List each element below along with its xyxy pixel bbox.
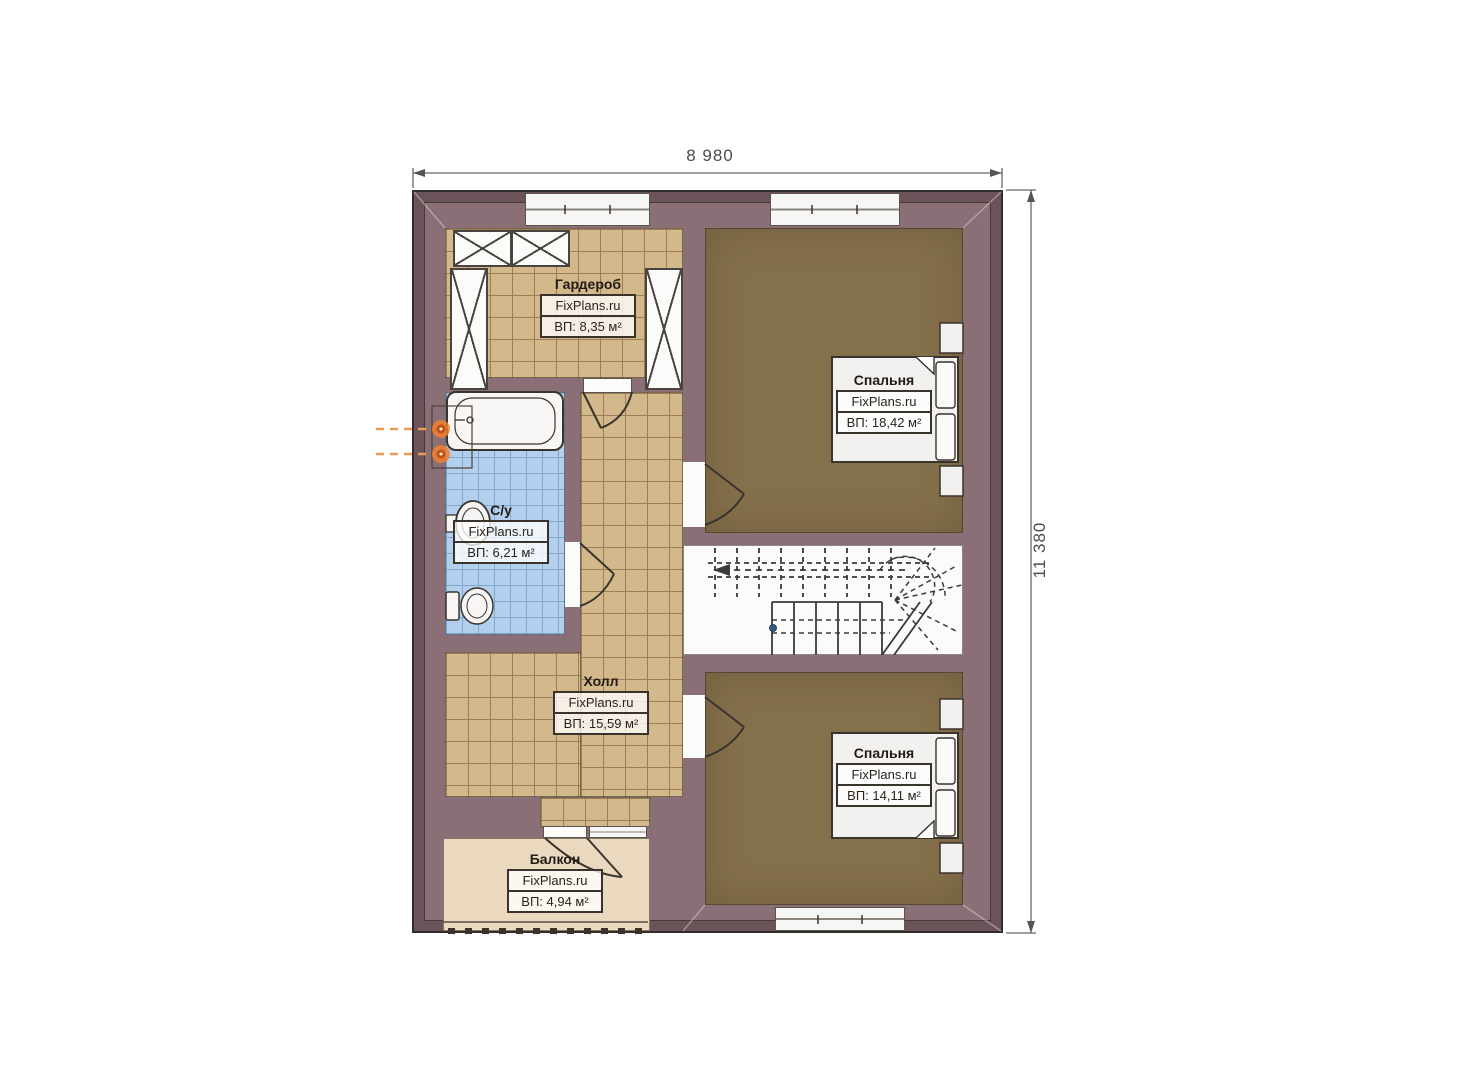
closet-top-left bbox=[453, 230, 512, 267]
room-name: Спальня bbox=[854, 745, 914, 761]
room-info-box: FixPlans.ru ВП: 4,94 м² bbox=[507, 869, 603, 913]
room-info-box: FixPlans.ru ВП: 15,59 м² bbox=[553, 691, 649, 735]
dimension-width-label: 8 980 bbox=[660, 146, 760, 166]
window-top-bedroom bbox=[770, 193, 900, 226]
floor-hall-upper bbox=[580, 392, 683, 797]
brand-watermark: FixPlans.ru bbox=[838, 765, 930, 784]
room-name: Спальня bbox=[854, 372, 914, 388]
brand-watermark: FixPlans.ru bbox=[542, 296, 634, 315]
room-label-bathroom: С/у FixPlans.ru ВП: 6,21 м² bbox=[453, 502, 549, 564]
dimension-height-label: 11 380 bbox=[1030, 500, 1050, 600]
floor-hall-balcony-lobby bbox=[540, 797, 650, 827]
room-label-balcony: Балкон FixPlans.ru ВП: 4,94 м² bbox=[507, 851, 603, 913]
room-area: ВП: 6,21 м² bbox=[455, 541, 547, 562]
closet-left bbox=[450, 268, 488, 390]
room-area: ВП: 14,11 м² bbox=[838, 784, 930, 805]
room-label-bedroom-bottom: Спальня FixPlans.ru ВП: 14,11 м² bbox=[836, 745, 932, 807]
room-name: С/у bbox=[490, 502, 512, 518]
room-area: ВП: 15,59 м² bbox=[555, 712, 647, 733]
room-area: ВП: 4,94 м² bbox=[509, 890, 601, 911]
room-name: Холл bbox=[583, 673, 618, 689]
window-bottom-bedroom bbox=[775, 907, 905, 931]
closet-right bbox=[645, 268, 683, 390]
window-balcony-sidelight bbox=[589, 826, 647, 838]
room-area: ВП: 18,42 м² bbox=[838, 411, 930, 432]
door-opening-wardrobe bbox=[583, 378, 632, 393]
brand-watermark: FixPlans.ru bbox=[509, 871, 601, 890]
room-label-wardrobe: Гардероб FixPlans.ru ВП: 8,35 м² bbox=[540, 276, 636, 338]
room-info-box: FixPlans.ru ВП: 6,21 м² bbox=[453, 520, 549, 564]
room-info-box: FixPlans.ru ВП: 14,11 м² bbox=[836, 763, 932, 807]
brand-watermark: FixPlans.ru bbox=[555, 693, 647, 712]
closet-top-right bbox=[511, 230, 570, 267]
door-opening-bedroom-bottom bbox=[683, 695, 705, 758]
brand-watermark: FixPlans.ru bbox=[455, 522, 547, 541]
room-name: Балкон bbox=[530, 851, 581, 867]
room-name: Гардероб bbox=[555, 276, 621, 292]
brand-watermark: FixPlans.ru bbox=[838, 392, 930, 411]
floor-plan-canvas: 8 980 11 380 bbox=[0, 0, 1473, 1080]
door-opening-bathroom bbox=[565, 542, 580, 607]
room-info-box: FixPlans.ru ВП: 18,42 м² bbox=[836, 390, 932, 434]
window-top-wardrobe bbox=[525, 193, 650, 226]
floor-stairwell bbox=[683, 545, 963, 655]
room-info-box: FixPlans.ru ВП: 8,35 м² bbox=[540, 294, 636, 338]
door-opening-balcony bbox=[543, 826, 587, 838]
door-opening-bedroom-top bbox=[683, 462, 705, 527]
room-label-bedroom-top: Спальня FixPlans.ru ВП: 18,42 м² bbox=[836, 372, 932, 434]
room-area: ВП: 8,35 м² bbox=[542, 315, 634, 336]
room-label-hall: Холл FixPlans.ru ВП: 15,59 м² bbox=[553, 673, 649, 735]
